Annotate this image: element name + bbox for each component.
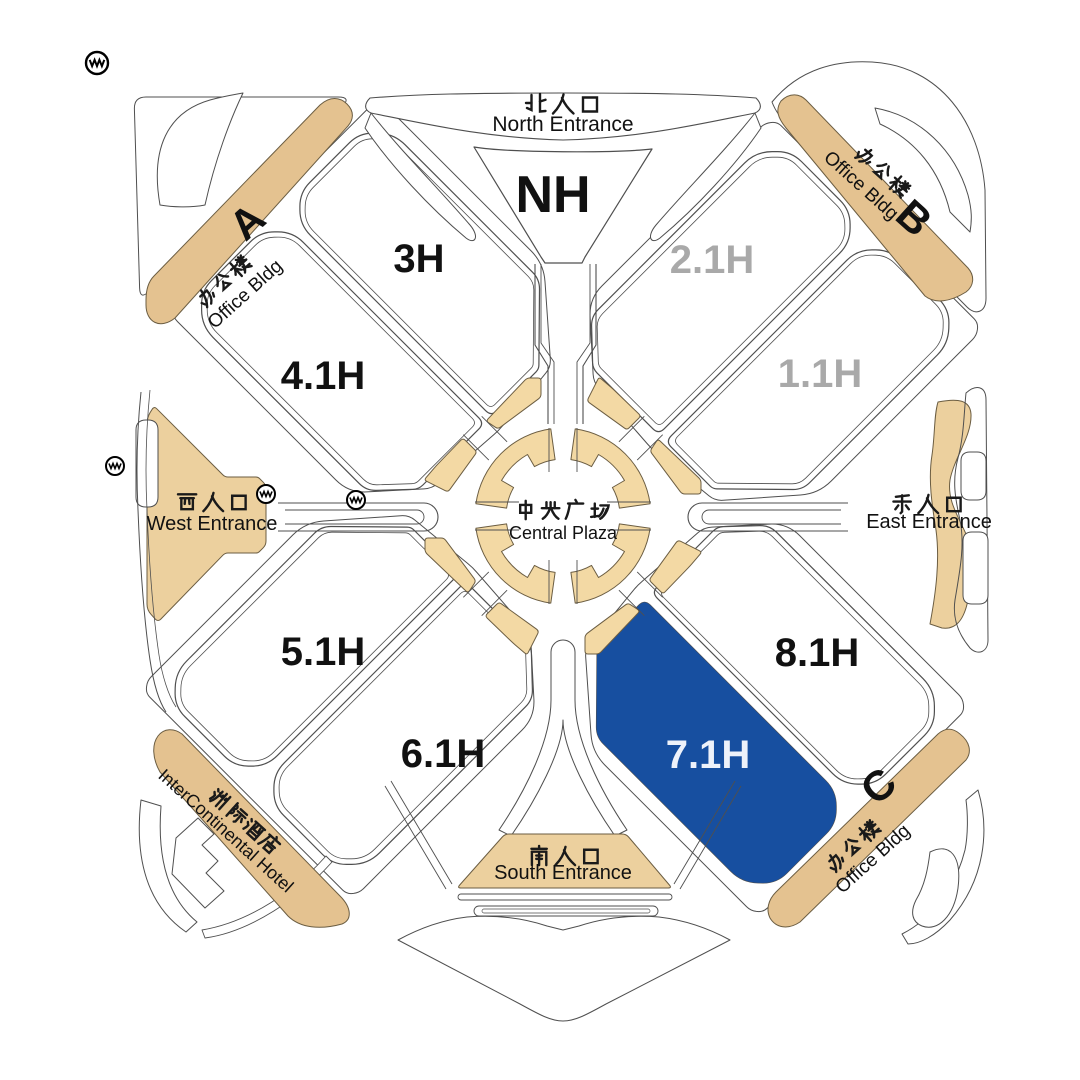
svg-text:7.1H: 7.1H bbox=[666, 733, 751, 777]
svg-text:8.1H: 8.1H bbox=[775, 631, 860, 675]
svg-text:NH: NH bbox=[515, 166, 590, 224]
svg-text:2.1H: 2.1H bbox=[670, 238, 755, 282]
svg-text:5.1H: 5.1H bbox=[281, 630, 366, 674]
svg-text:3H: 3H bbox=[393, 237, 444, 281]
svg-text:Central Plaza: Central Plaza bbox=[509, 523, 618, 543]
svg-text:6.1H: 6.1H bbox=[401, 732, 486, 776]
svg-text:East Entrance: East Entrance bbox=[866, 511, 992, 533]
svg-text:South Entrance: South Entrance bbox=[494, 862, 632, 884]
svg-text:West Entrance: West Entrance bbox=[147, 513, 278, 535]
svg-text:4.1H: 4.1H bbox=[281, 354, 366, 398]
svg-text:North Entrance: North Entrance bbox=[492, 113, 633, 136]
svg-text:1.1H: 1.1H bbox=[778, 352, 863, 396]
